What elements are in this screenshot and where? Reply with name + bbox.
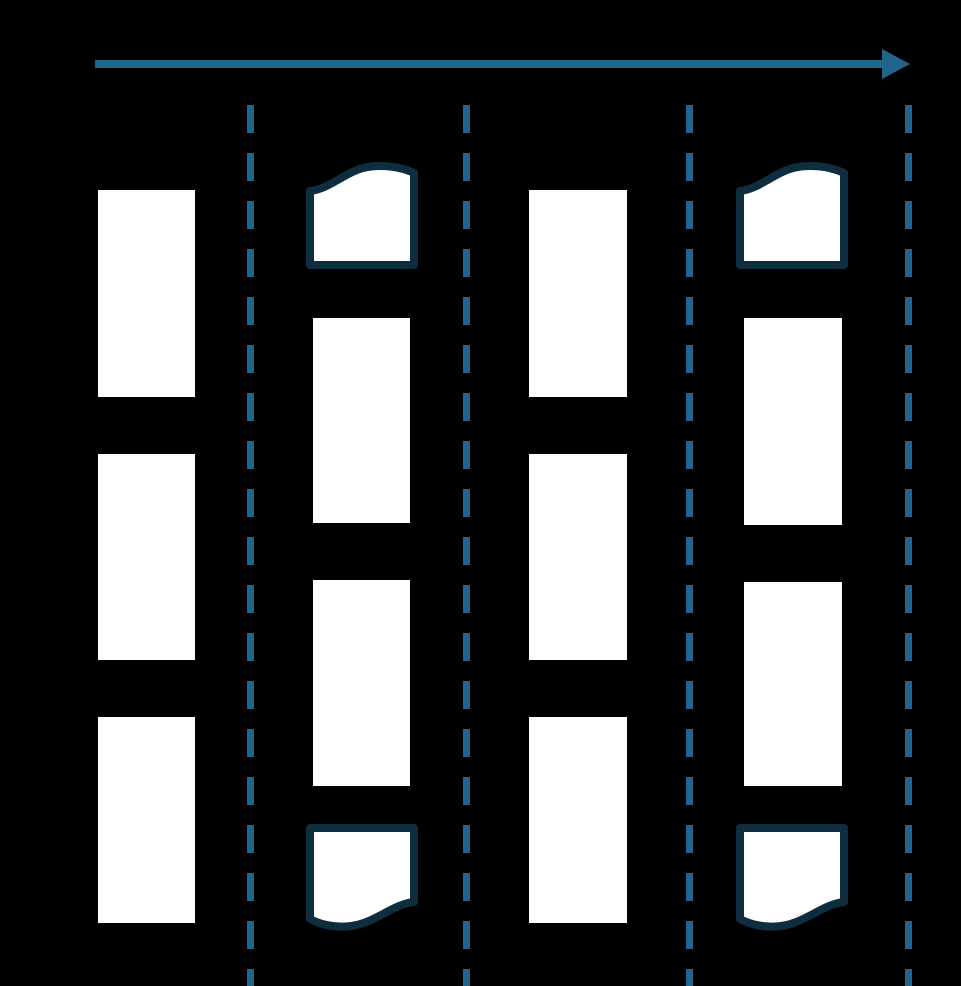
column-2-block-3 — [313, 580, 410, 786]
column-separator-1 — [247, 105, 254, 986]
column-3-block-2 — [529, 454, 627, 660]
column-1-block-2 — [98, 454, 195, 660]
column-3-block-1 — [529, 190, 627, 397]
column-4-block-2 — [744, 318, 842, 525]
column-2-block-2 — [313, 318, 410, 523]
column-4-torn-top-block — [735, 158, 849, 270]
column-2-torn-bottom-block — [305, 823, 419, 935]
column-separator-2 — [463, 105, 470, 986]
column-separator-3 — [686, 105, 693, 986]
arrow-label: Processing order — [95, 28, 910, 62]
column-4-block-3 — [744, 582, 842, 786]
column-4-torn-bottom-block — [735, 823, 849, 935]
column-separator-4 — [905, 105, 912, 986]
column-1-block-3 — [98, 717, 195, 923]
column-2-torn-top-block — [305, 158, 419, 270]
column-3-block-3 — [529, 717, 627, 923]
fragmentation-diagram: Processing order — [0, 0, 961, 986]
column-1-block-1 — [98, 190, 195, 397]
